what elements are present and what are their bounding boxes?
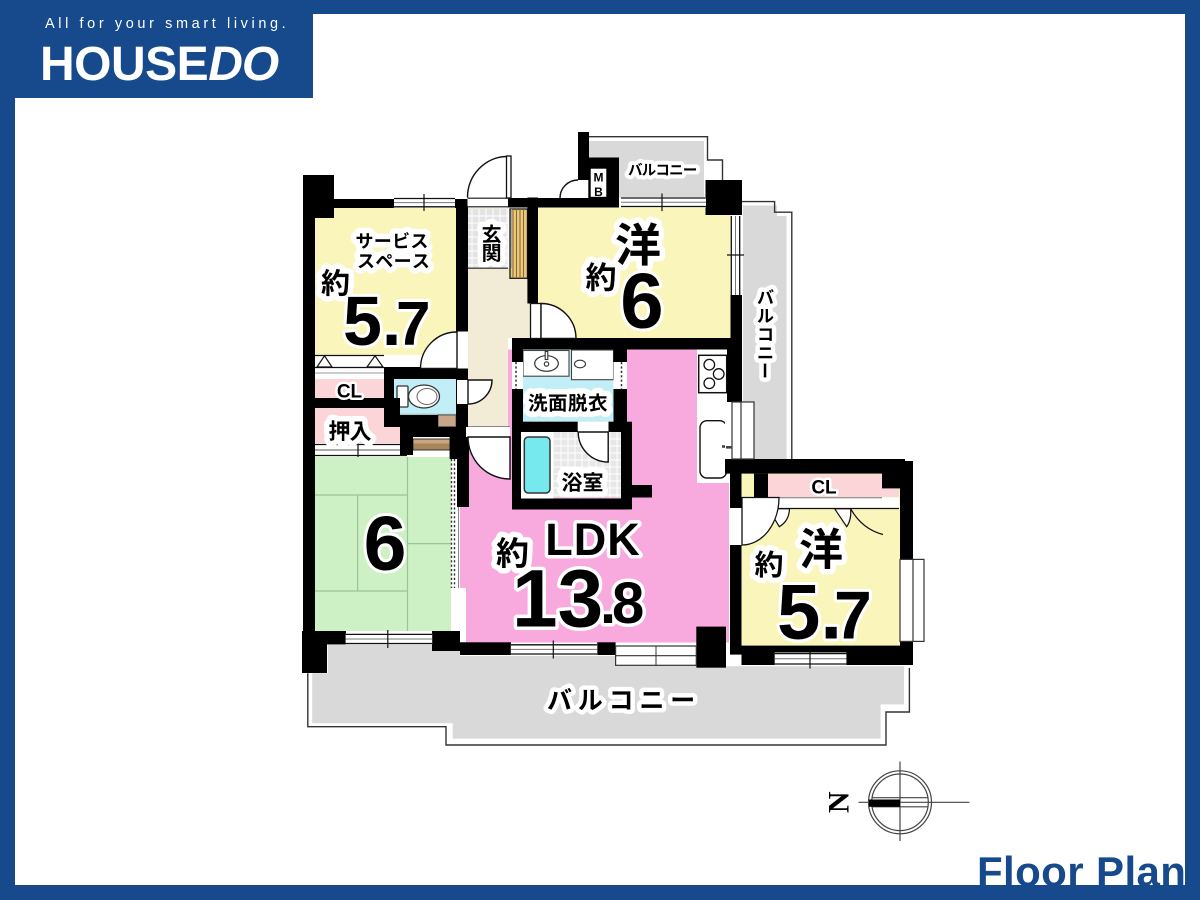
svg-text:B: B: [594, 185, 603, 199]
svg-text:5.: 5.: [343, 282, 401, 360]
svg-text:6: 6: [364, 501, 407, 587]
svg-text:5.: 5.: [777, 568, 842, 656]
svg-text:8: 8: [612, 571, 644, 636]
svg-text:13: 13: [512, 554, 603, 645]
svg-text:CL: CL: [811, 478, 837, 499]
svg-text:7: 7: [396, 290, 430, 359]
svg-text:6: 6: [620, 257, 663, 345]
svg-text:N: N: [823, 791, 856, 813]
svg-text:7: 7: [834, 578, 872, 654]
svg-text:M: M: [594, 171, 604, 185]
svg-text:CL: CL: [337, 382, 363, 403]
